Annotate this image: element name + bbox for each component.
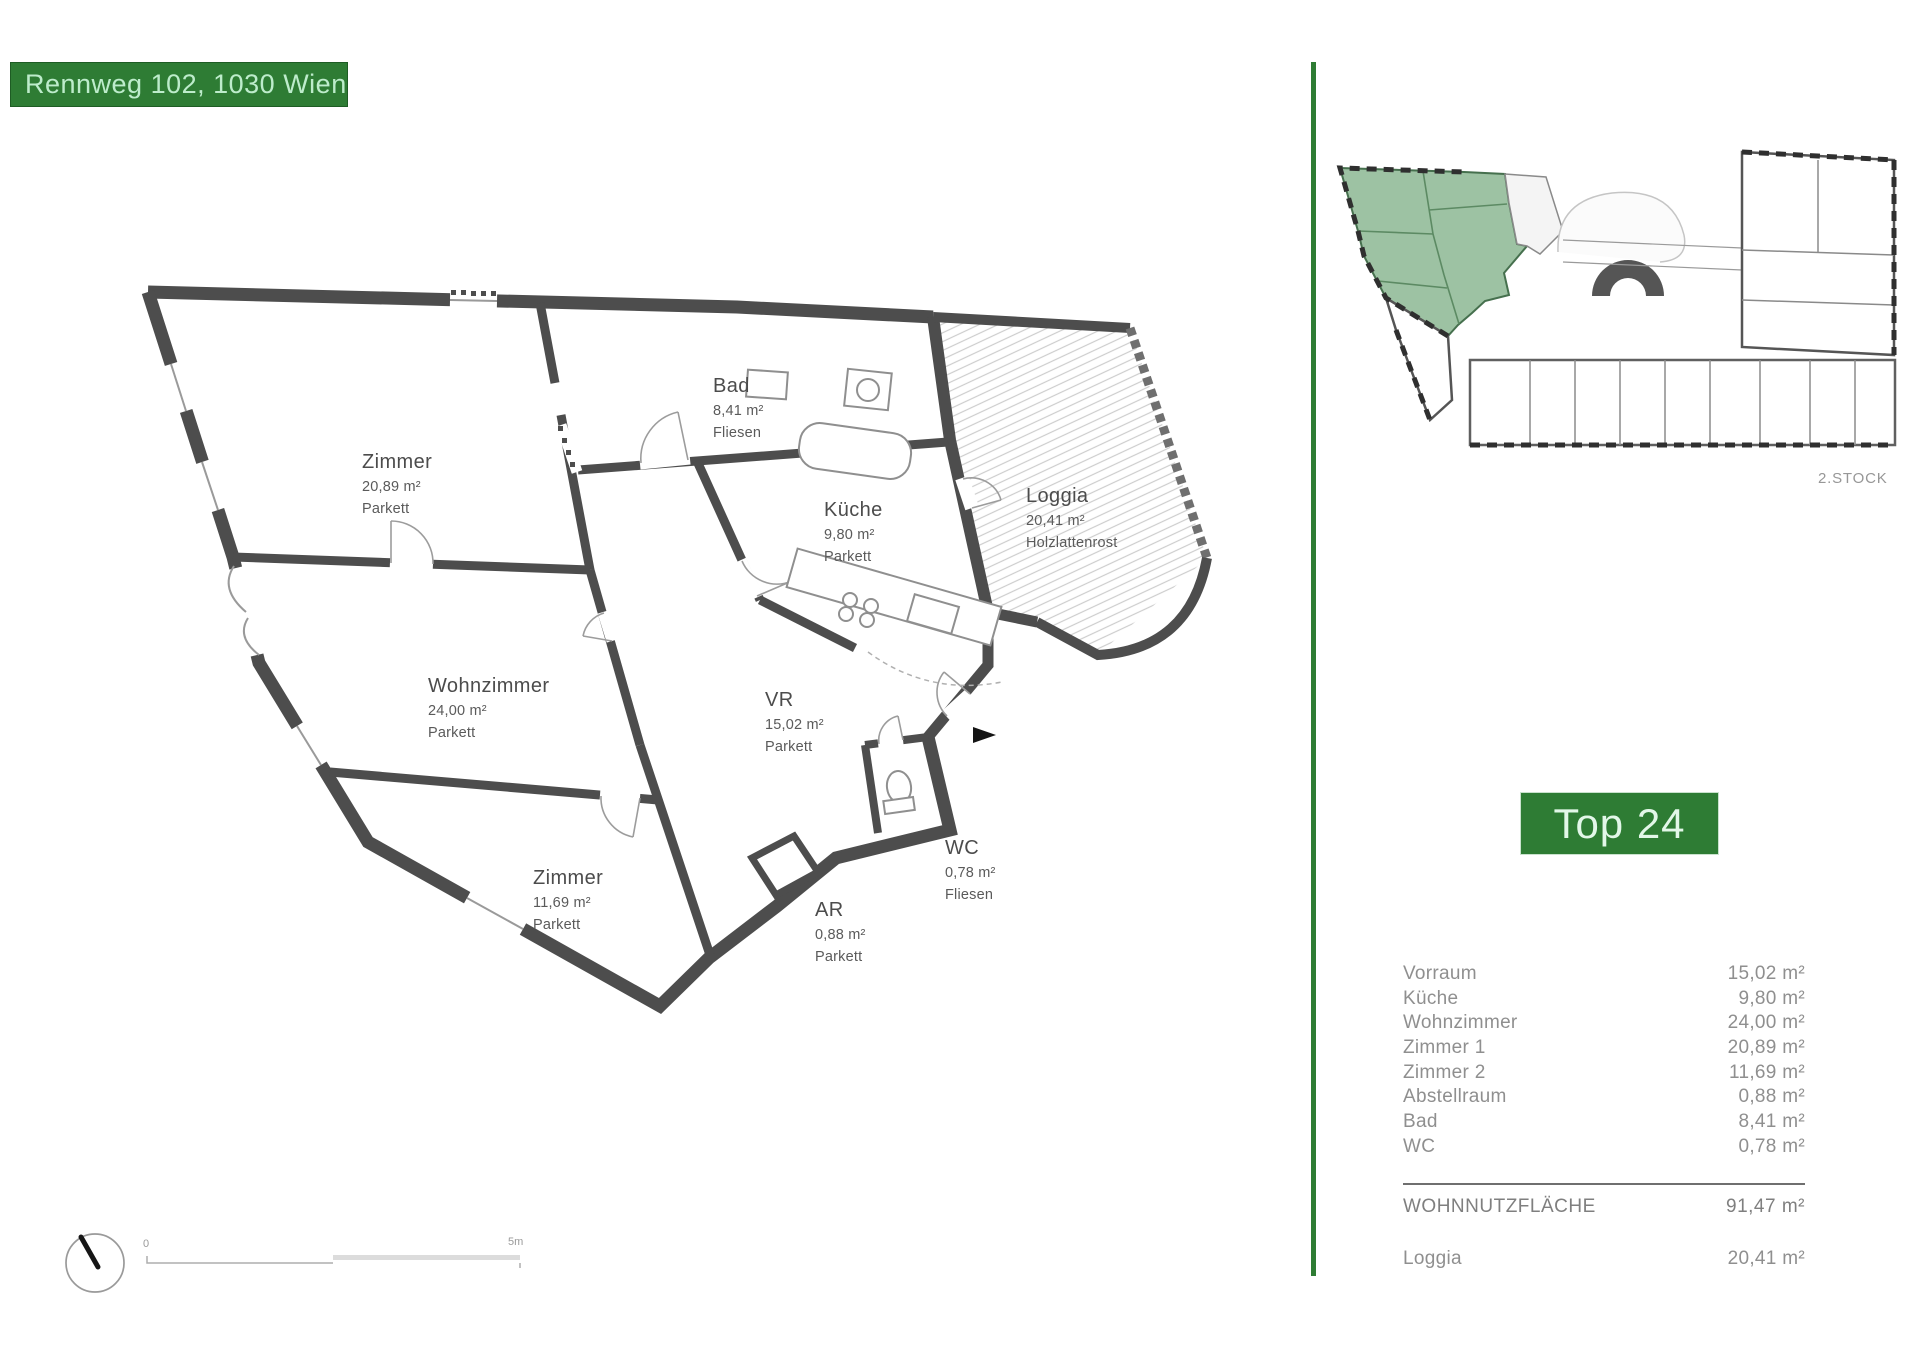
windows (171, 300, 523, 929)
bathtub-icon (796, 420, 913, 481)
table-row: Abstellraum0,88 m² (1403, 1086, 1805, 1111)
room-label-ar: AR 0,88 m² Parkett (815, 900, 866, 971)
door-arcs (391, 412, 1001, 837)
table-row: Vorraum15,02 m² (1403, 963, 1805, 988)
room-label-zimmer2: Zimmer 11,69 m² Parkett (533, 868, 603, 939)
scale-bar (147, 1255, 520, 1268)
loggia-row: Loggia 20,41 m² (1403, 1248, 1805, 1270)
floor-label: 2.STOCK (1818, 470, 1888, 487)
unit-title-box: Top 24 (1520, 792, 1719, 855)
address-header: Rennweg 102, 1030 Wien (10, 62, 348, 107)
scale-zero-label: 0 (143, 1238, 149, 1250)
table-divider (1403, 1183, 1805, 1185)
area-schedule: Vorraum15,02 m² Küche9,80 m² Wohnzimmer2… (1403, 963, 1805, 1161)
north-compass-icon (66, 1234, 124, 1292)
room-label-loggia: Loggia 20,41 m² Holzlattenrost (1026, 486, 1117, 557)
room-label-wc: WC 0,78 m² Fliesen (945, 838, 996, 909)
scale-five-label: 5m (508, 1236, 523, 1248)
room-label-bad: Bad 8,41 m² Fliesen (713, 376, 764, 447)
address-text: Rennweg 102, 1030 Wien (11, 69, 347, 100)
table-row: Zimmer 120,89 m² (1403, 1037, 1805, 1062)
room-label-kueche: Küche 9,80 m² Parkett (824, 500, 883, 571)
table-row: Zimmer 211,69 m² (1403, 1062, 1805, 1087)
highlighted-unit (1340, 168, 1527, 336)
table-row: Bad8,41 m² (1403, 1111, 1805, 1136)
room-label-vr: VR 15,02 m² Parkett (765, 690, 824, 761)
table-row: WC0,78 m² (1403, 1136, 1805, 1161)
table-row: Wohnzimmer24,00 m² (1403, 1012, 1805, 1037)
table-row: Küche9,80 m² (1403, 988, 1805, 1013)
entrance-arrow-icon (973, 727, 996, 743)
vertical-divider (1311, 62, 1316, 1276)
room-label-wohnzimmer: Wohnzimmer 24,00 m² Parkett (428, 676, 549, 747)
main-floorplan (148, 290, 1207, 1006)
overview-floorplan (1340, 152, 1895, 445)
unit-title: Top 24 (1553, 800, 1685, 848)
room-label-zimmer1: Zimmer 20,89 m² Parkett (362, 452, 432, 523)
total-row: WOHNNUTZFLÄCHE 91,47 m² (1403, 1196, 1805, 1218)
